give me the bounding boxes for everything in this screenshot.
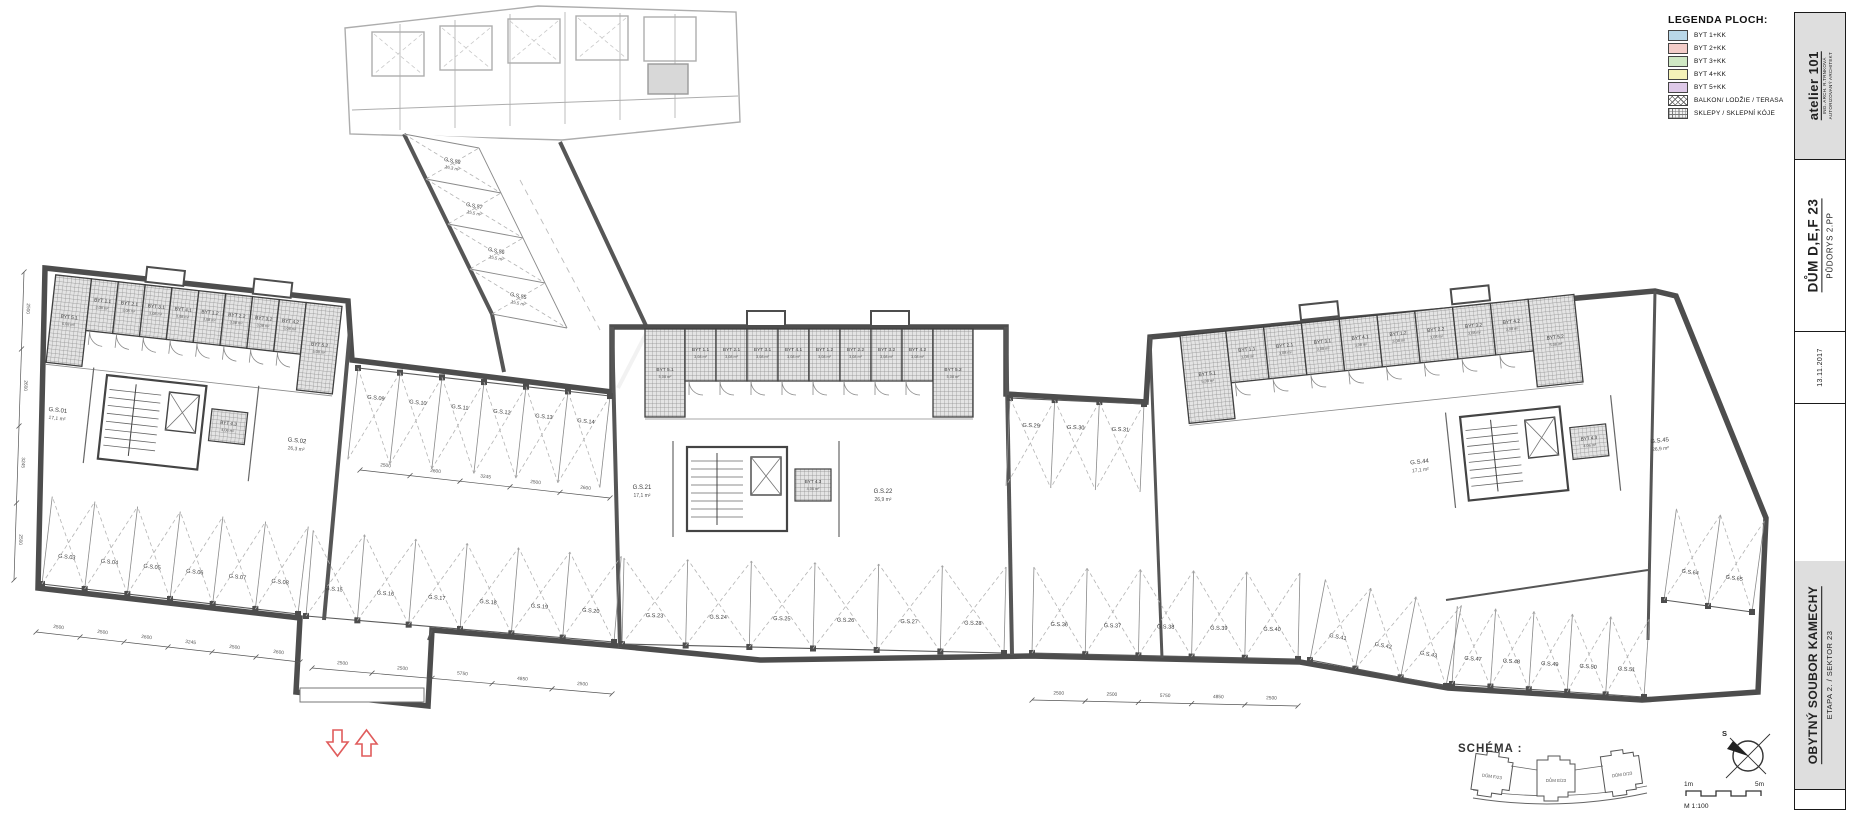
parking-space-label: G.S.40: [1263, 627, 1281, 633]
garage-room-label: G.S.21: [633, 485, 652, 491]
legend-swatch-fill-icon: [1668, 56, 1688, 67]
dimension-value: 2600: [22, 380, 28, 391]
parking-space-label: G.S.26: [837, 618, 855, 624]
cage-area: 3,08 m²: [849, 355, 863, 359]
parking-space-label: G.S.50: [1579, 664, 1597, 671]
title-block-complex: OBYTNÝ SOUBOR KAMECHY ETAPA 2. / SEKTOR …: [1795, 561, 1845, 789]
north-label: S: [1722, 729, 1727, 738]
garage-room-area: 17,1 m²: [634, 493, 651, 499]
parking-space-label: G.S.25: [773, 616, 791, 622]
parking-space-label: G.S.47: [1464, 656, 1482, 663]
parking-space-label: G.S.23: [646, 613, 664, 619]
dim-bottom-right: 25002500575048502500: [1030, 690, 1301, 708]
garage-room-label: G.S.22: [874, 489, 893, 495]
legend-item: BYT 4+KK: [1668, 69, 1794, 79]
dimension-value: 2500: [380, 462, 392, 469]
legend-swatch-fill-icon: [1668, 30, 1688, 41]
cage-label: BYT 2.2: [847, 347, 865, 353]
entry-arrow-down-icon: [327, 730, 348, 756]
legend-item: SKLEPY / SKLEPNÍ KÓJE: [1668, 108, 1794, 118]
legend-swatch-fill-icon: [1668, 82, 1688, 93]
cage-area: 3,08 m²: [818, 355, 832, 359]
schema-building: DŮM F/23: [1470, 750, 1514, 800]
project-title: DŮM D,E,F 23: [1806, 198, 1823, 292]
garage-entry: [300, 688, 424, 756]
cage-label: BYT 3.1: [754, 347, 772, 353]
dimension-value: 2500: [397, 665, 408, 672]
stair-core: [98, 375, 207, 469]
cage-area: 3,08 m²: [694, 355, 708, 359]
cage-label: BYT 5.2: [944, 367, 962, 373]
parking-space-label: G.S.28: [964, 621, 982, 627]
parking-space-label: G.S.30: [1067, 425, 1085, 432]
parking-space-label: G.S.39: [1210, 625, 1228, 631]
parking-space-label: G.S.29: [1022, 423, 1040, 430]
cage-label: BYT 5.1: [656, 367, 674, 373]
dimension-value: 4850: [1213, 694, 1224, 700]
dimension-value: 3245: [480, 473, 492, 480]
legend-item-label: BYT 3+KK: [1694, 58, 1726, 65]
legend-item-label: SKLEPY / SKLEPNÍ KÓJE: [1694, 110, 1775, 117]
parking-space-label: G.S.31: [1112, 427, 1130, 434]
cage-area: 4,06 m²: [807, 487, 821, 491]
floor-plan-sheet: BYT 5.15,08 m²BYT 1.13,08 m²BYT 2.13,08 …: [0, 0, 1850, 820]
schema-diagram: DŮM F/23DŮM E/23DŮM D/23: [1470, 748, 1647, 804]
dimension-value: 3245: [185, 639, 197, 646]
title-block-project: DŮM D,E,F 23 PŮDORYS 2.PP: [1795, 159, 1845, 331]
legend-item-label: BYT 2+KK: [1694, 45, 1726, 52]
dimension-value: 2600: [141, 634, 153, 641]
garage-room-area: 26,9 m²: [875, 497, 892, 503]
stair-core: [1460, 407, 1568, 501]
legend-item: BYT 2+KK: [1668, 43, 1794, 53]
dimension-value: 2500: [229, 644, 241, 651]
title-block: atelier 101 ING. ARCH. R.TRNKOVÁ AUTORIZ…: [1794, 12, 1846, 810]
schema-building: DŮM D/23: [1600, 748, 1644, 798]
cage-area: 3,08 m²: [756, 355, 770, 359]
legend-item: BYT 5+KK: [1668, 82, 1794, 92]
title-block-date: 13.11.2017: [1795, 331, 1845, 403]
dimension-value: 2500: [1053, 690, 1064, 696]
legend-item-label: BYT 5+KK: [1694, 84, 1726, 91]
parking-space-label: G.S.27: [900, 619, 918, 625]
north-arrow: S: [1722, 729, 1770, 778]
scale-bar: 1m 5m M 1:100: [1684, 781, 1764, 810]
cage-label: BYT 3.2: [878, 347, 896, 353]
dimension-value: 2500: [577, 681, 588, 688]
dimension-value: 2600: [273, 649, 285, 656]
scale-left: 1m: [1684, 781, 1693, 788]
dimension-value: 2600: [580, 485, 592, 492]
parking-space-label: G.S.38: [1157, 624, 1175, 630]
scale-ratio: M 1:100: [1684, 803, 1709, 810]
floor-plan-drawing: BYT 5.15,08 m²BYT 1.13,08 m²BYT 2.13,08 …: [0, 0, 1850, 820]
scale-right: 5m: [1755, 781, 1764, 788]
parking-space-label: G.S.49: [1541, 661, 1559, 668]
dimension-value: 2500: [53, 624, 65, 631]
dimension-value: 3245: [20, 457, 26, 468]
parking-space-label: G.S.37: [1104, 623, 1122, 629]
dimension-value: 2500: [1266, 695, 1277, 701]
cage-area: 3,08 m²: [787, 355, 801, 359]
legend-item-label: BYT 4+KK: [1694, 71, 1726, 78]
cage-area: 3,08 m²: [911, 355, 925, 359]
adjacent-building-wing: [345, 6, 740, 140]
cage-label: BYT 4.3: [805, 479, 822, 484]
legend-item-label: BYT 1+KK: [1694, 32, 1726, 39]
studio-name: atelier 101: [1806, 51, 1822, 120]
stair-core: [687, 447, 787, 531]
dimension-value: 2500: [97, 629, 109, 636]
legend-swatch-fill-icon: [1668, 43, 1688, 54]
dimension-value: 2500: [530, 479, 542, 486]
dimension-value: 2500: [17, 534, 23, 545]
schema-label: SCHÉMA :: [1458, 742, 1522, 755]
cage-area: 5,08 m²: [659, 375, 673, 379]
stage-label: ETAPA 2. / SEKTOR 23: [1825, 586, 1834, 764]
cage-label: BYT 4.2: [909, 347, 927, 353]
parking-space-label: G.S.48: [1502, 658, 1520, 665]
legend-item: BYT 3+KK: [1668, 56, 1794, 66]
studio-line2: AUTORIZOVANÝ ARCHITEKT: [1828, 51, 1834, 120]
entry-arrow-up-icon: [356, 730, 377, 756]
dimension-value: 5750: [1160, 693, 1171, 699]
dimension-value: 5750: [457, 671, 468, 678]
dimension-value: 2500: [337, 660, 348, 667]
legend: LEGENDA PLOCH: BYT 1+KKBYT 2+KKBYT 3+KKB…: [1668, 14, 1794, 121]
complex-name: OBYTNÝ SOUBOR KAMECHY: [1806, 586, 1822, 764]
title-block-studio: atelier 101 ING. ARCH. R.TRNKOVÁ AUTORIZ…: [1795, 13, 1845, 159]
drawing-date: 13.11.2017: [1816, 348, 1823, 387]
legend-swatch-fill-icon: [1668, 69, 1688, 80]
dim-bottom-left: 250025002600324525002600: [34, 624, 303, 665]
drawing-title: PŮDORYS 2.PP: [1826, 198, 1835, 292]
parking-space-label: G.S.36: [1050, 622, 1068, 628]
cage-area: 3,08 m²: [880, 355, 894, 359]
legend-item-label: BALKON/ LODŽIE / TERASA: [1694, 97, 1783, 104]
cage-area: 3,08 m²: [725, 355, 739, 359]
dimension-value: 2500: [25, 303, 31, 314]
schema-building-label: DŮM E/23: [1546, 778, 1567, 783]
legend-item: BYT 1+KK: [1668, 30, 1794, 40]
schema-building: DŮM E/23: [1537, 756, 1575, 801]
legend-swatch-grid-icon: [1668, 108, 1688, 119]
parking-space-label: G.S.51: [1618, 666, 1636, 673]
parking-space-label: G.S.24: [709, 615, 727, 621]
legend-swatch-cross-icon: [1668, 95, 1688, 106]
dimension-value: 4850: [517, 676, 528, 683]
dimension-value: 2600: [430, 468, 442, 475]
legend-item: BALKON/ LODŽIE / TERASA: [1668, 95, 1794, 105]
cage-label: BYT 4.1: [785, 347, 803, 353]
cage-label: BYT 1.1: [692, 347, 710, 353]
cage-label: BYT 2.1: [723, 347, 741, 353]
cage-label: BYT 1.2: [816, 347, 834, 353]
dim-left-vertical: 2500260032452500: [12, 270, 31, 583]
cage-area: 5,08 m²: [947, 375, 961, 379]
legend-title: LEGENDA PLOCH:: [1668, 14, 1794, 26]
dimension-value: 2500: [1107, 692, 1118, 698]
